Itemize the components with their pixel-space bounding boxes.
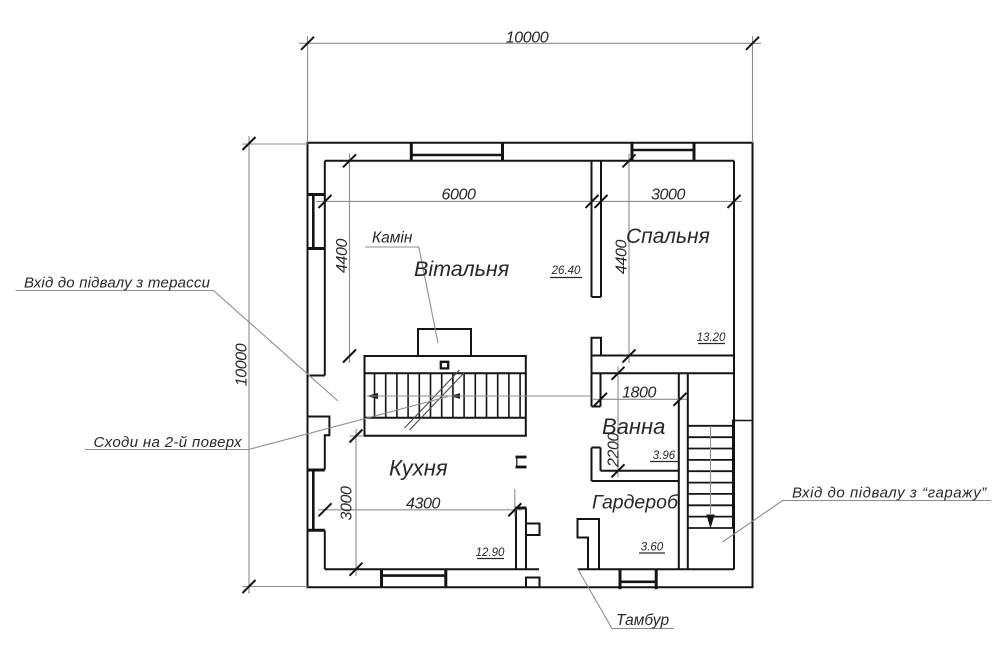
svg-text:6000: 6000 (442, 187, 476, 204)
svg-text:12.90: 12.90 (476, 547, 505, 559)
svg-text:4300: 4300 (406, 495, 440, 512)
svg-text:Тамбур: Тамбур (616, 612, 670, 629)
svg-text:26.40: 26.40 (551, 265, 581, 277)
svg-text:10000: 10000 (506, 29, 549, 46)
svg-text:3.96: 3.96 (653, 450, 676, 462)
svg-text:Гардероб: Гардероб (592, 492, 679, 514)
svg-text:1800: 1800 (622, 385, 656, 402)
svg-text:10000: 10000 (234, 343, 251, 386)
svg-text:Кухня: Кухня (389, 456, 448, 481)
svg-text:13.20: 13.20 (697, 332, 726, 344)
svg-text:3.60: 3.60 (641, 542, 664, 554)
svg-text:Сходи на 2-й поверх: Сходи на 2-й поверх (94, 434, 243, 451)
svg-text:Вхід до підвалу з “гаражу”: Вхід до підвалу з “гаражу” (792, 485, 987, 502)
svg-text:Вітальня: Вітальня (414, 257, 510, 281)
svg-text:Камін: Камін (372, 230, 413, 247)
svg-text:Спальня: Спальня (626, 225, 710, 248)
svg-text:4400: 4400 (334, 239, 351, 273)
svg-text:3000: 3000 (339, 486, 356, 520)
svg-text:Вхід до підвалу з терасси: Вхід до підвалу з терасси (24, 275, 211, 292)
svg-text:3000: 3000 (651, 187, 685, 204)
svg-text:Ванна: Ванна (602, 414, 665, 439)
